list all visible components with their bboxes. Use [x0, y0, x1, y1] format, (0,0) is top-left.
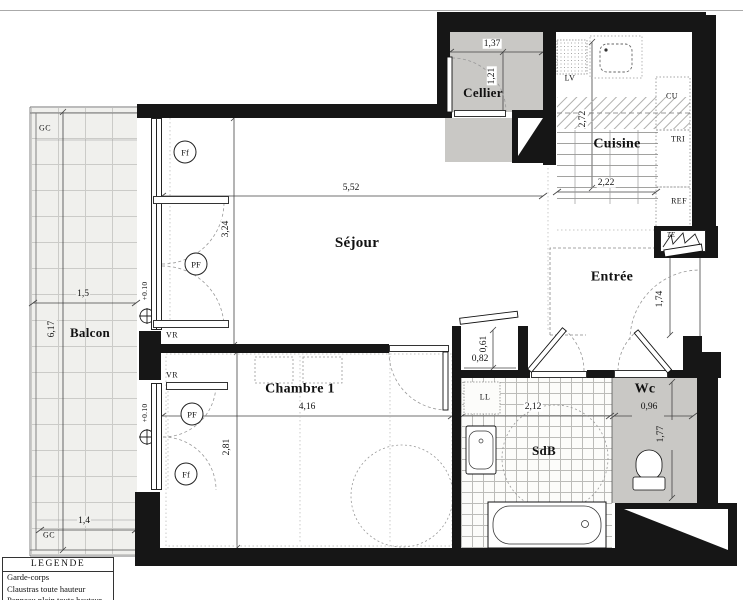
- dim-wc-depth: 1,77: [656, 425, 666, 444]
- dim-balcon-depth: 6,17: [47, 320, 57, 339]
- chambre-door-sill: [389, 345, 449, 352]
- wall-chambre-top: [161, 344, 389, 353]
- dim-sejour-width: 5,52: [342, 183, 361, 193]
- dim-cellier-width: 1,37: [483, 39, 502, 49]
- pf-chambre-marker: PF: [181, 403, 204, 426]
- balcon-label: Balcon: [69, 326, 111, 340]
- dim-chambre-depth: 2,81: [222, 438, 232, 457]
- property-boundary-line: [0, 10, 743, 11]
- sejour-shutter-box-lower: [153, 320, 229, 328]
- entree-label: Entrée: [590, 269, 634, 284]
- dim-entree-depth: 1,74: [655, 290, 665, 309]
- entree-dashed-boundary: [550, 248, 656, 335]
- cuisine-label: Cuisine: [592, 136, 641, 151]
- sdb-door-sill: [531, 371, 587, 378]
- cu-unit-box: [656, 77, 690, 130]
- dim-placard-depth: 0,61: [479, 335, 489, 354]
- vr-chambre-label: VR: [165, 372, 179, 381]
- dim-cuisine-width: 2,22: [597, 178, 616, 188]
- tri-label: TRI: [670, 136, 686, 145]
- shaded-area-below-cellier: [445, 118, 512, 162]
- dim-placard-width: 0,82: [471, 354, 490, 364]
- wall-top-band: [437, 12, 706, 32]
- ll-label: LL: [479, 394, 492, 403]
- pf-sejour-marker: PF: [185, 253, 208, 276]
- wall-sejour-top: [137, 104, 452, 118]
- legend-header: LEGENDE: [3, 558, 113, 572]
- sink-symbol: [600, 44, 632, 72]
- legend-item-garde-corps: Garde-corps: [3, 572, 113, 584]
- ff-sejour-marker: Ff: [174, 141, 197, 164]
- chambre-window: [151, 383, 162, 490]
- chambre-door-leaf: [443, 352, 448, 410]
- wall-sdb-top-mid: [587, 370, 614, 378]
- wc-floor: [612, 378, 697, 503]
- legend-box: LEGENDE Garde-corps Claustras toute haut…: [2, 557, 114, 600]
- cu-label: CU: [665, 93, 679, 102]
- wall-sdb-top-left: [458, 370, 530, 378]
- wc-door-sill: [614, 370, 668, 378]
- wall-wc-right: [697, 378, 718, 505]
- sejour-label: Séjour: [334, 235, 380, 252]
- wall-right-mid: [683, 336, 702, 378]
- lv-label: LV: [564, 75, 577, 84]
- wall-bottom-left-corner: [135, 492, 160, 548]
- gc-b-label: GC: [42, 532, 56, 541]
- pf-sejour-text: PF: [191, 259, 200, 269]
- dim-wc-width: 0,96: [640, 402, 659, 412]
- dim-balcon-width-bottom: 1,4: [77, 516, 91, 526]
- dim-sejour-depth: 3,24: [221, 220, 231, 239]
- gc-top-label: GC: [38, 125, 52, 134]
- dim-cuisine-depth: 2,72: [578, 110, 588, 129]
- bed-outline: [255, 357, 342, 383]
- wc-door-leaf: [634, 330, 671, 373]
- cellier-label: Cellier: [462, 86, 504, 100]
- vr-sejour-label: VR: [165, 332, 179, 341]
- sejour-shutter-box-upper: [153, 196, 229, 204]
- dim-sdb-width: 2,12: [524, 402, 543, 412]
- wall-wc-top: [668, 370, 683, 378]
- level-sejour-label: +0.10: [141, 281, 149, 302]
- dim-balcon-width-top: 1,5: [76, 289, 90, 299]
- legend-item-claustras: Claustras toute hauteur: [3, 584, 113, 596]
- sejour-window: [151, 118, 162, 330]
- pf-chambre-text: PF: [187, 409, 196, 419]
- faucet-dot: [604, 48, 607, 51]
- wall-chambre-sdb: [452, 352, 461, 552]
- wall-right-jog: [702, 352, 721, 378]
- sdb-door-leaf: [528, 328, 567, 373]
- ff-chambre-marker: Ff: [175, 463, 198, 486]
- chambre-label: Chambre 1: [264, 381, 336, 396]
- ff-sejour-text: Ff: [181, 147, 189, 157]
- chambre-shutter-box: [166, 382, 228, 390]
- ff-chambre-text: Ff: [182, 469, 190, 479]
- level-chambre-label: +0.10: [141, 403, 149, 424]
- wall-between-windows: [139, 331, 161, 380]
- floor-plan: Balcon Séjour Chambre 1 Cellier Cuisine …: [0, 0, 743, 600]
- wc-label: Wc: [634, 381, 657, 396]
- wall-placard-right: [518, 326, 528, 372]
- dishwasher-symbol: [557, 40, 587, 74]
- te-label: TE: [666, 232, 676, 240]
- dim-chambre-width: 4,16: [298, 402, 317, 412]
- dim-cellier-depth: 1,21: [487, 67, 497, 86]
- placard-sliding-door: [460, 311, 518, 324]
- cellier-door-sill: [454, 110, 506, 117]
- wall-right-upper: [692, 15, 716, 228]
- sdb-label: SdB: [531, 444, 557, 458]
- ref-label: REF: [670, 198, 688, 207]
- legend-item-panneau: Panneau plein toute hauteur: [3, 595, 113, 600]
